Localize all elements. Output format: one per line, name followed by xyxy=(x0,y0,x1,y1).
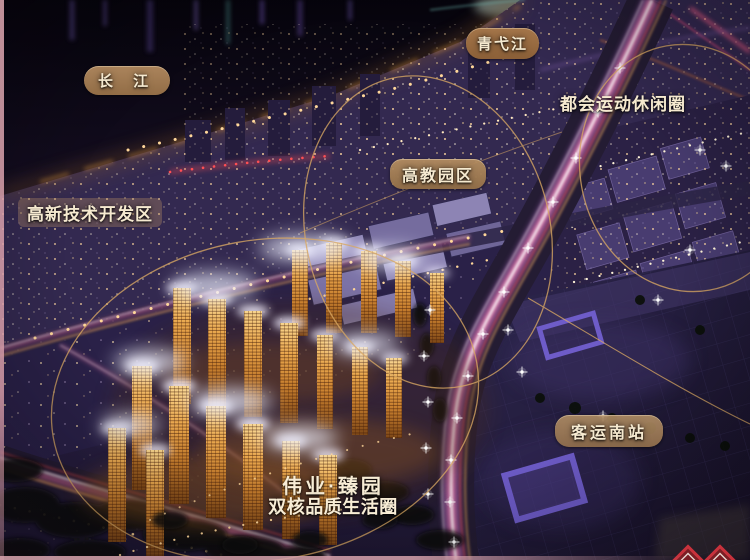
label-project-tagline: 双核品质生活圈 xyxy=(251,493,415,519)
label-hightech-zone: 高新技术开发区 xyxy=(18,198,162,227)
label-education-park: 高教园区 xyxy=(390,159,486,189)
scan-edge-bottom xyxy=(0,556,750,560)
label-changjiang-river: 长 江 xyxy=(84,66,170,95)
label-metro-leisure-circle: 都会运动休闲圈 xyxy=(560,90,686,115)
label-south-passenger-station: 客运南站 xyxy=(555,415,663,447)
scan-edge-left xyxy=(0,0,4,560)
aerial-night-map: 长 江 青弋江 都会运动休闲圈 高教园区 高新技术开发区 客运南站 伟业·臻园 … xyxy=(0,0,750,560)
label-qingyijiang-river: 青弋江 xyxy=(466,28,539,59)
